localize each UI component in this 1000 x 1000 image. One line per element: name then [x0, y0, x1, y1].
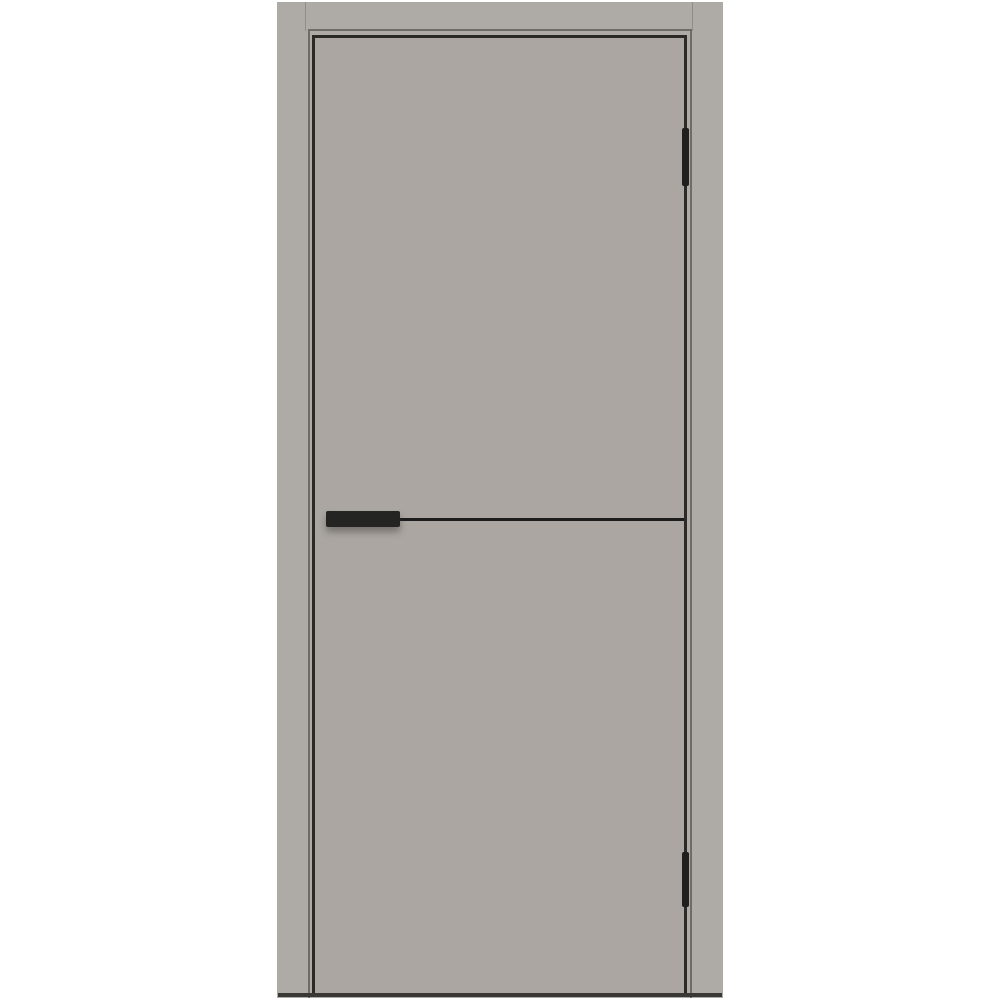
- floor-shadow-line: [278, 993, 722, 997]
- hinge-top: [682, 128, 689, 186]
- hinge-bottom: [682, 852, 689, 907]
- casing-joint-seam-right: [692, 2, 693, 31]
- door-product-image: [0, 0, 1000, 1000]
- door-handle: [326, 511, 400, 527]
- horizontal-inlay-strip: [400, 518, 684, 521]
- casing-joint-seam-left: [305, 2, 306, 31]
- door-frame-casing: [277, 2, 723, 998]
